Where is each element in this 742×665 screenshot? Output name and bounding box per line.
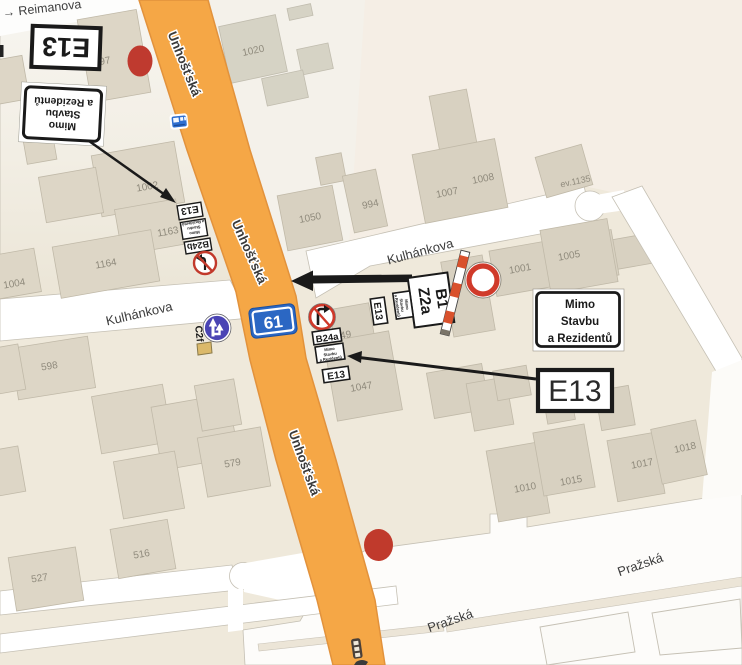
svg-text:Stavbu: Stavbu <box>561 316 599 328</box>
svg-text:C2f: C2f <box>192 325 205 343</box>
svg-text:61: 61 <box>263 312 284 333</box>
svg-text:a Rezidentů: a Rezidentů <box>548 333 613 345</box>
svg-text:E13: E13 <box>548 375 601 408</box>
svg-text:E13: E13 <box>41 31 90 63</box>
svg-text:Mimo: Mimo <box>565 299 595 311</box>
